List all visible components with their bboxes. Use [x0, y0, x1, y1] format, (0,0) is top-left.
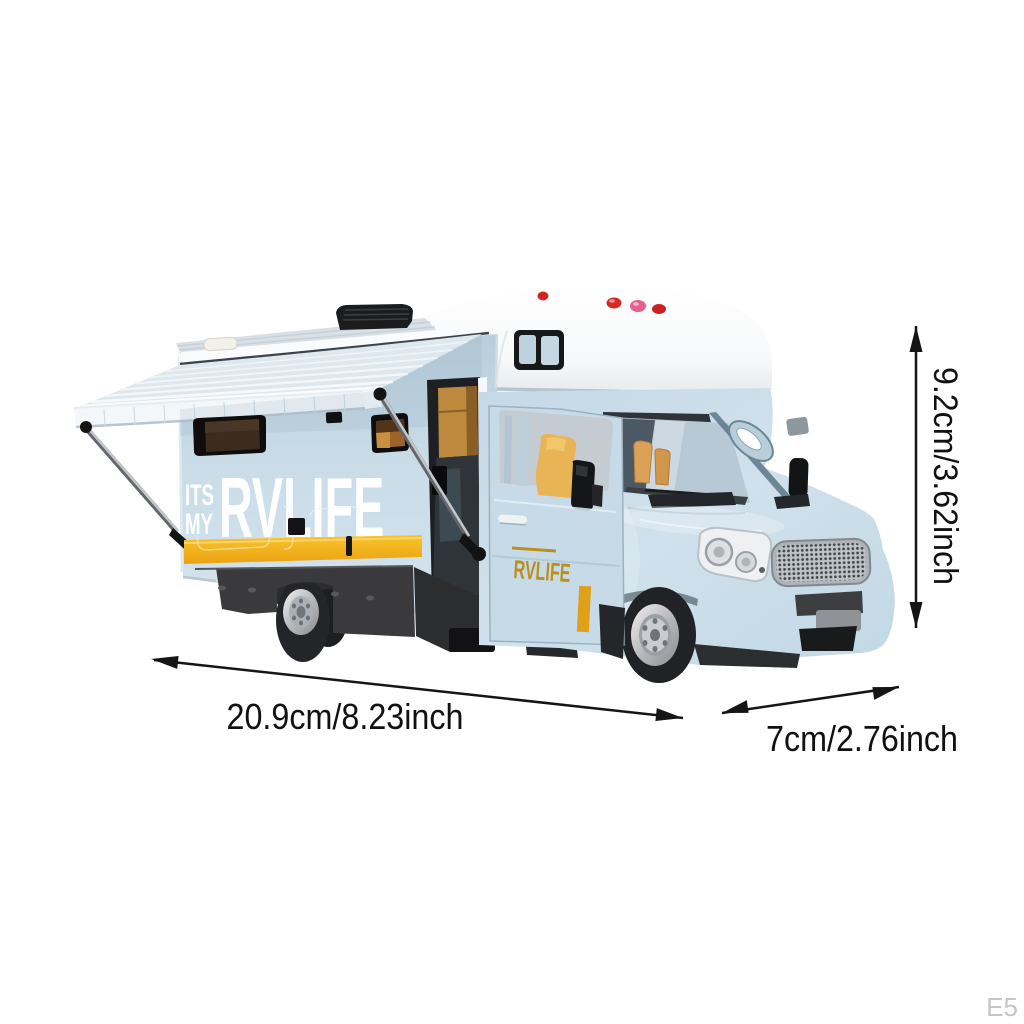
svg-text:MY: MY	[185, 508, 213, 542]
svg-text:9.2cm/3.62inch: 9.2cm/3.62inch	[926, 367, 964, 585]
svg-text:E5: E5	[986, 992, 1018, 1022]
svg-text:RVLIFE: RVLIFE	[513, 554, 572, 588]
svg-text:7cm/2.76inch: 7cm/2.76inch	[766, 718, 958, 759]
svg-text:20.9cm/8.23inch: 20.9cm/8.23inch	[227, 696, 464, 737]
